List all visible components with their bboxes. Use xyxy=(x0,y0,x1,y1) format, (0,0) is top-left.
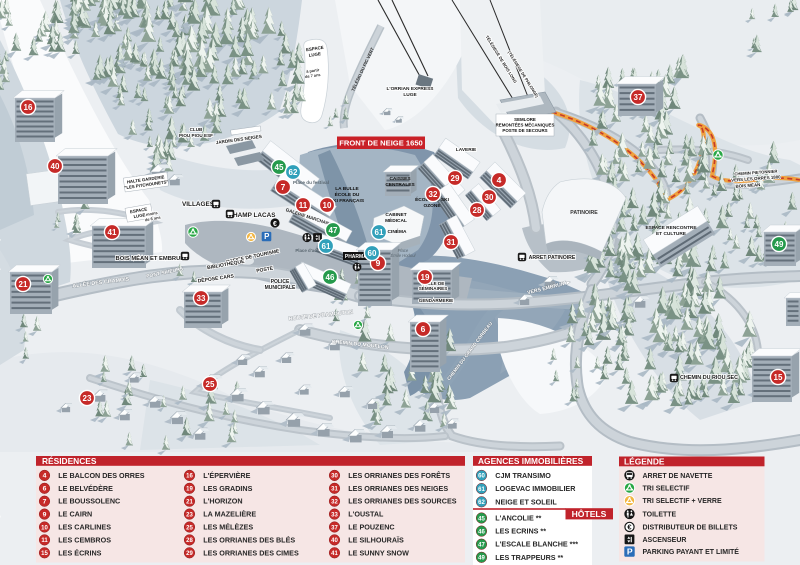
svg-text:29: 29 xyxy=(186,551,193,557)
svg-text:32: 32 xyxy=(429,190,438,199)
svg-text:LES ORRIANES DES BLÉS: LES ORRIANES DES BLÉS xyxy=(203,535,295,544)
svg-text:LE BALCON DES ORRES: LE BALCON DES ORRES xyxy=(58,471,144,480)
svg-text:40: 40 xyxy=(331,538,338,544)
svg-text:Place du festival: Place du festival xyxy=(293,180,329,185)
svg-text:ARRET DE NAVETTE: ARRET DE NAVETTE xyxy=(643,473,713,480)
svg-text:60: 60 xyxy=(478,474,485,480)
svg-text:LOGEVAC IMMOBILIER: LOGEVAC IMMOBILIER xyxy=(495,484,576,493)
svg-text:L'OUSTAL: L'OUSTAL xyxy=(348,510,384,519)
svg-text:LES ORRIANES DES FORÊTS: LES ORRIANES DES FORÊTS xyxy=(348,471,450,480)
svg-text:LES ORRIANES DES NEIGES: LES ORRIANES DES NEIGES xyxy=(348,484,448,493)
svg-text:16: 16 xyxy=(186,474,193,480)
svg-text:LA BULLE: LA BULLE xyxy=(335,186,359,192)
svg-text:Émile Hodoul: Émile Hodoul xyxy=(391,253,417,258)
svg-text:P: P xyxy=(627,547,633,557)
svg-text:L'HORIZON: L'HORIZON xyxy=(203,497,242,506)
svg-text:CHEMIN DU RIOU SEC: CHEMIN DU RIOU SEC xyxy=(680,375,738,381)
svg-text:45: 45 xyxy=(275,163,284,172)
svg-text:49: 49 xyxy=(775,240,784,249)
svg-text:28: 28 xyxy=(186,538,193,544)
svg-text:SEMLORE: SEMLORE xyxy=(514,117,536,122)
svg-text:7: 7 xyxy=(43,499,47,506)
svg-text:SKI FRANÇAIS: SKI FRANÇAIS xyxy=(330,198,365,204)
svg-text:9: 9 xyxy=(43,511,47,518)
svg-text:49: 49 xyxy=(478,556,485,562)
svg-text:15: 15 xyxy=(774,373,783,382)
svg-text:62: 62 xyxy=(478,500,485,506)
svg-text:NEIGE ET SOLEIL: NEIGE ET SOLEIL xyxy=(495,497,557,506)
svg-text:33: 33 xyxy=(331,512,338,518)
svg-text:TRI SELECTIF + VERRE: TRI SELECTIF + VERRE xyxy=(643,498,722,505)
svg-text:VILLAGES: VILLAGES xyxy=(182,201,215,208)
svg-text:REMONTÉES MÉCANIQUES: REMONTÉES MÉCANIQUES xyxy=(496,123,555,128)
svg-text:BOIS MÉAN ET EMBRUN: BOIS MÉAN ET EMBRUN xyxy=(116,254,185,262)
svg-text:61: 61 xyxy=(322,242,331,251)
svg-text:6: 6 xyxy=(43,486,47,493)
svg-text:30: 30 xyxy=(485,193,494,202)
svg-text:CLUB: CLUB xyxy=(190,127,203,132)
svg-text:LE BELVÉDÈRE: LE BELVÉDÈRE xyxy=(58,484,113,493)
svg-text:PATINOIRE: PATINOIRE xyxy=(570,210,598,216)
svg-text:LE SUNNY SNOW: LE SUNNY SNOW xyxy=(348,548,409,557)
svg-text:32: 32 xyxy=(331,500,338,506)
svg-text:61: 61 xyxy=(375,228,384,237)
svg-text:37: 37 xyxy=(634,93,643,102)
svg-text:CJM TRANSIMO: CJM TRANSIMO xyxy=(495,471,551,480)
svg-text:31: 31 xyxy=(447,238,456,247)
svg-text:11: 11 xyxy=(299,201,308,210)
svg-text:47: 47 xyxy=(329,226,338,235)
svg-text:45: 45 xyxy=(478,516,485,522)
svg-text:CAISSES: CAISSES xyxy=(389,176,411,182)
svg-text:LES CEMBROS: LES CEMBROS xyxy=(58,535,111,544)
svg-text:PARKING PAYANT ET LIMITÉ: PARKING PAYANT ET LIMITÉ xyxy=(643,547,740,556)
svg-text:41: 41 xyxy=(331,551,338,557)
svg-text:46: 46 xyxy=(326,273,335,282)
svg-text:ARRET PATINOIRE: ARRET PATINOIRE xyxy=(529,255,576,261)
svg-text:LES TRAPPEURS **: LES TRAPPEURS ** xyxy=(495,553,563,562)
svg-text:29: 29 xyxy=(451,174,460,183)
svg-text:POSTE DE SECOURS: POSTE DE SECOURS xyxy=(502,128,547,133)
svg-text:28: 28 xyxy=(473,206,482,215)
svg-text:ASCENSEUR: ASCENSEUR xyxy=(643,537,687,544)
svg-text:46: 46 xyxy=(478,529,485,535)
svg-text:23: 23 xyxy=(83,394,92,403)
svg-text:LES ORRIANES DES CIMES: LES ORRIANES DES CIMES xyxy=(203,548,299,557)
svg-text:ET CULTURE: ET CULTURE xyxy=(656,231,687,237)
svg-text:OZONE: OZONE xyxy=(423,203,441,209)
svg-text:LAVERIE: LAVERIE xyxy=(456,147,477,153)
svg-text:25: 25 xyxy=(206,380,215,389)
svg-text:60: 60 xyxy=(368,249,377,258)
svg-text:16: 16 xyxy=(24,103,33,112)
svg-text:25: 25 xyxy=(186,525,193,531)
svg-text:CABINET: CABINET xyxy=(385,212,406,218)
svg-text:37: 37 xyxy=(331,525,338,531)
svg-text:61: 61 xyxy=(478,487,485,493)
svg-text:31: 31 xyxy=(331,487,338,493)
svg-text:LE POUZENC: LE POUZENC xyxy=(348,523,394,532)
svg-text:LES ECRINS **: LES ECRINS ** xyxy=(495,527,546,536)
svg-text:15: 15 xyxy=(41,551,48,557)
svg-text:6: 6 xyxy=(421,324,426,334)
svg-text:4: 4 xyxy=(497,175,502,185)
svg-text:4: 4 xyxy=(43,473,47,480)
svg-text:11: 11 xyxy=(41,538,48,544)
svg-text:€: € xyxy=(273,221,277,228)
svg-text:GENDARMERIE: GENDARMERIE xyxy=(419,298,453,303)
svg-text:7: 7 xyxy=(281,182,286,192)
svg-text:LES MÉLÈZES: LES MÉLÈZES xyxy=(203,523,253,532)
svg-text:LE SILHOURAÏS: LE SILHOURAÏS xyxy=(348,535,404,544)
svg-text:62: 62 xyxy=(289,168,298,177)
svg-text:AGENCES IMMOBILIÈRES: AGENCES IMMOBILIÈRES xyxy=(478,455,584,466)
svg-text:19: 19 xyxy=(186,487,193,493)
svg-text:L'ÉPERVIÈRE: L'ÉPERVIÈRE xyxy=(203,471,250,480)
svg-text:LES ORRIANES DES SOURCES: LES ORRIANES DES SOURCES xyxy=(348,497,456,506)
svg-text:RÉSIDENCES: RÉSIDENCES xyxy=(42,455,97,466)
svg-text:21: 21 xyxy=(186,500,193,506)
svg-text:TOILETTE: TOILETTE xyxy=(643,511,677,518)
svg-text:LA MAZELIÈRE: LA MAZELIÈRE xyxy=(203,510,256,519)
svg-text:LE CAIRN: LE CAIRN xyxy=(58,510,92,519)
svg-text:MUNICIPALE: MUNICIPALE xyxy=(265,285,296,291)
svg-text:10: 10 xyxy=(323,201,332,210)
svg-text:DISTRIBUTEUR DE BILLETS: DISTRIBUTEUR DE BILLETS xyxy=(643,524,738,531)
svg-text:10: 10 xyxy=(41,525,48,531)
svg-text:30: 30 xyxy=(331,474,338,480)
svg-text:40: 40 xyxy=(51,162,60,171)
svg-text:47: 47 xyxy=(478,543,485,549)
svg-text:21: 21 xyxy=(19,280,28,289)
svg-text:CENTRALES: CENTRALES xyxy=(385,182,415,188)
svg-text:CHAMP LACAS: CHAMP LACAS xyxy=(228,212,276,219)
svg-text:L'ANCOLIE **: L'ANCOLIE ** xyxy=(495,514,541,523)
svg-text:41: 41 xyxy=(108,228,117,237)
svg-text:L'ORRIAN EXPRESS: L'ORRIAN EXPRESS xyxy=(387,86,435,92)
svg-text:PIOU PIOU ESF: PIOU PIOU ESF xyxy=(179,133,213,138)
svg-text:LE BOUSSOLENC: LE BOUSSOLENC xyxy=(58,497,120,506)
svg-text:23: 23 xyxy=(186,512,193,518)
svg-text:FRONT DE NEIGE 1650: FRONT DE NEIGE 1650 xyxy=(339,139,423,148)
svg-text:L'ESCALE BLANCHE ***: L'ESCALE BLANCHE *** xyxy=(495,540,578,549)
svg-text:33: 33 xyxy=(197,294,206,303)
svg-text:LES ÉCRINS: LES ÉCRINS xyxy=(58,548,101,557)
svg-text:P: P xyxy=(264,232,269,241)
svg-text:19: 19 xyxy=(421,273,430,282)
svg-text:LES GRADINS: LES GRADINS xyxy=(203,484,252,493)
svg-text:HÔTELS: HÔTELS xyxy=(572,508,607,519)
svg-text:LES CARLINES: LES CARLINES xyxy=(58,523,111,532)
svg-text:LÉGENDE: LÉGENDE xyxy=(624,455,665,466)
svg-text:LUGE: LUGE xyxy=(403,92,417,98)
svg-text:TRI SELECTIF: TRI SELECTIF xyxy=(643,486,691,493)
svg-text:ESPACE RENCONTRE: ESPACE RENCONTRE xyxy=(645,225,697,231)
